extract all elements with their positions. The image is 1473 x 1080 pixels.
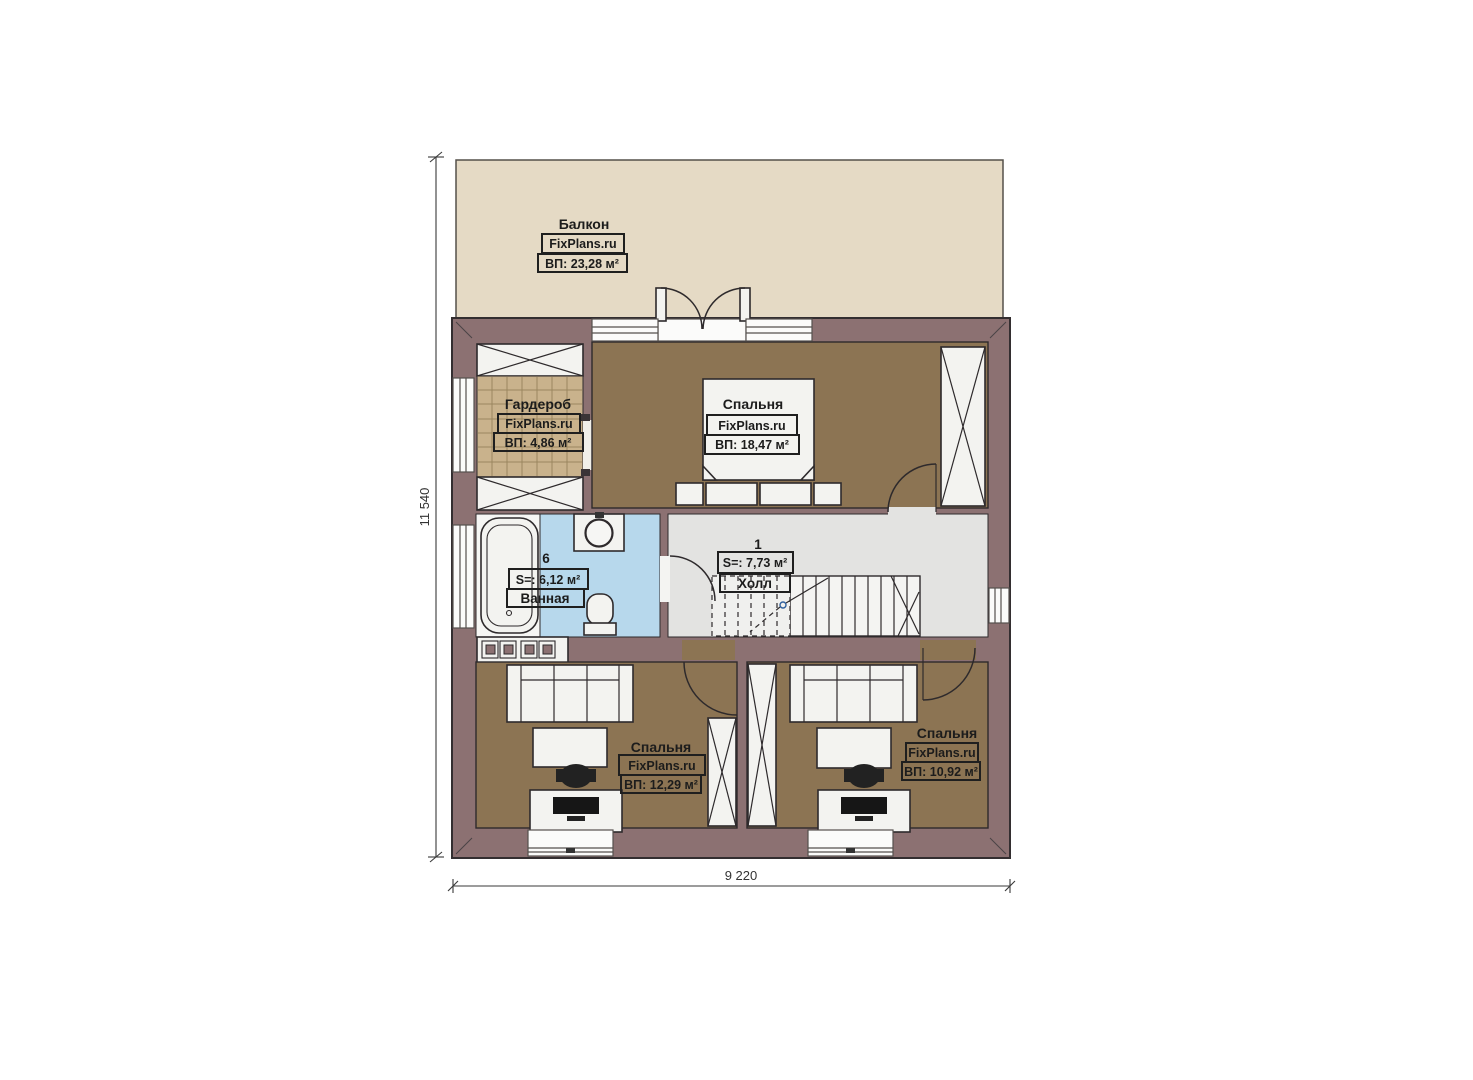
sofa-left xyxy=(507,665,633,722)
bedroom-top-room: Спальня FixPlans.ru ВП: 18,47 м² xyxy=(592,342,988,508)
toilet-tank xyxy=(584,623,616,635)
dimension-left: 11 540 xyxy=(417,152,444,862)
bedroom-right-room: Спальня FixPlans.ru ВП: 10,92 м² xyxy=(747,662,988,832)
bedroom-left-door-opening xyxy=(682,640,735,660)
bedroom-left-name: Спальня xyxy=(631,739,691,755)
sink-tap xyxy=(595,512,604,518)
monitor-left xyxy=(553,797,599,814)
office-chair-left xyxy=(560,764,592,788)
monitor-right xyxy=(841,797,887,814)
hall-area: S=: 7,73 м² xyxy=(723,556,787,570)
dimension-bottom: 9 220 xyxy=(448,868,1015,893)
dimension-width-label: 9 220 xyxy=(725,868,758,883)
bedroom-right-name: Спальня xyxy=(917,725,977,741)
wardrobe-name: Гардероб xyxy=(505,396,572,412)
balcony: Балкон FixPlans.ru ВП: 23,28 м² xyxy=(456,160,1003,318)
toilet-bowl xyxy=(587,594,613,625)
pillow-right xyxy=(760,483,811,505)
wardrobe-brand: FixPlans.ru xyxy=(505,417,572,431)
bedroom-top-brand: FixPlans.ru xyxy=(718,419,785,433)
wardrobe-area: ВП: 4,86 м² xyxy=(505,436,572,450)
hall-name: Холл xyxy=(738,576,772,591)
office-chair-right xyxy=(848,764,880,788)
bedroom-top-name: Спальня xyxy=(723,396,783,412)
nightstand-right xyxy=(814,483,841,505)
balcony-brand: FixPlans.ru xyxy=(549,237,616,251)
wardrobe-room: Гардероб FixPlans.ru ВП: 4,86 м² xyxy=(477,344,592,510)
bedroom-top-door-opening xyxy=(888,507,936,515)
hall-room: 1 S=: 7,73 м² Холл xyxy=(668,514,988,637)
window-right-hall xyxy=(989,588,1009,623)
window-left-bathroom xyxy=(453,525,474,628)
hall-number: 1 xyxy=(754,537,762,552)
nightstand-left xyxy=(676,483,703,505)
bathroom-number: 6 xyxy=(542,551,550,566)
window-left-wardrobe xyxy=(453,378,474,472)
bedroom-left-brand: FixPlans.ru xyxy=(628,759,695,773)
wardrobe-door-opening xyxy=(583,420,592,470)
bedroom-right-brand: FixPlans.ru xyxy=(908,746,975,760)
table-left xyxy=(533,728,607,767)
floor-plan: Балкон FixPlans.ru ВП: 23,28 м² Гардероб… xyxy=(0,0,1473,1080)
bedroom-left-area: ВП: 12,29 м² xyxy=(624,778,698,792)
bedroom-right-area: ВП: 10,92 м² xyxy=(904,765,978,779)
bathroom-name: Ванная xyxy=(521,591,570,606)
bedroom-left-room: Спальня FixPlans.ru ВП: 12,29 м² xyxy=(476,662,737,832)
bathroom-area: S=: 6,12 м² xyxy=(516,573,580,587)
window-top-left xyxy=(592,319,658,341)
dimension-height-label: 11 540 xyxy=(417,488,432,527)
bedroom-top-area: ВП: 18,47 м² xyxy=(715,438,789,452)
pillow-left xyxy=(706,483,757,505)
dresser xyxy=(477,637,568,663)
window-top-right xyxy=(746,319,812,341)
bathroom-room: 6 S=: 6,12 м² Ванная xyxy=(476,512,660,637)
balcony-name: Балкон xyxy=(559,216,610,232)
bedroom-right-door-opening xyxy=(920,640,976,660)
balcony-area: ВП: 23,28 м² xyxy=(545,257,619,271)
table-right xyxy=(817,728,891,768)
bathroom-door-opening xyxy=(660,556,670,602)
sofa-right xyxy=(790,665,917,722)
sink xyxy=(586,520,613,547)
